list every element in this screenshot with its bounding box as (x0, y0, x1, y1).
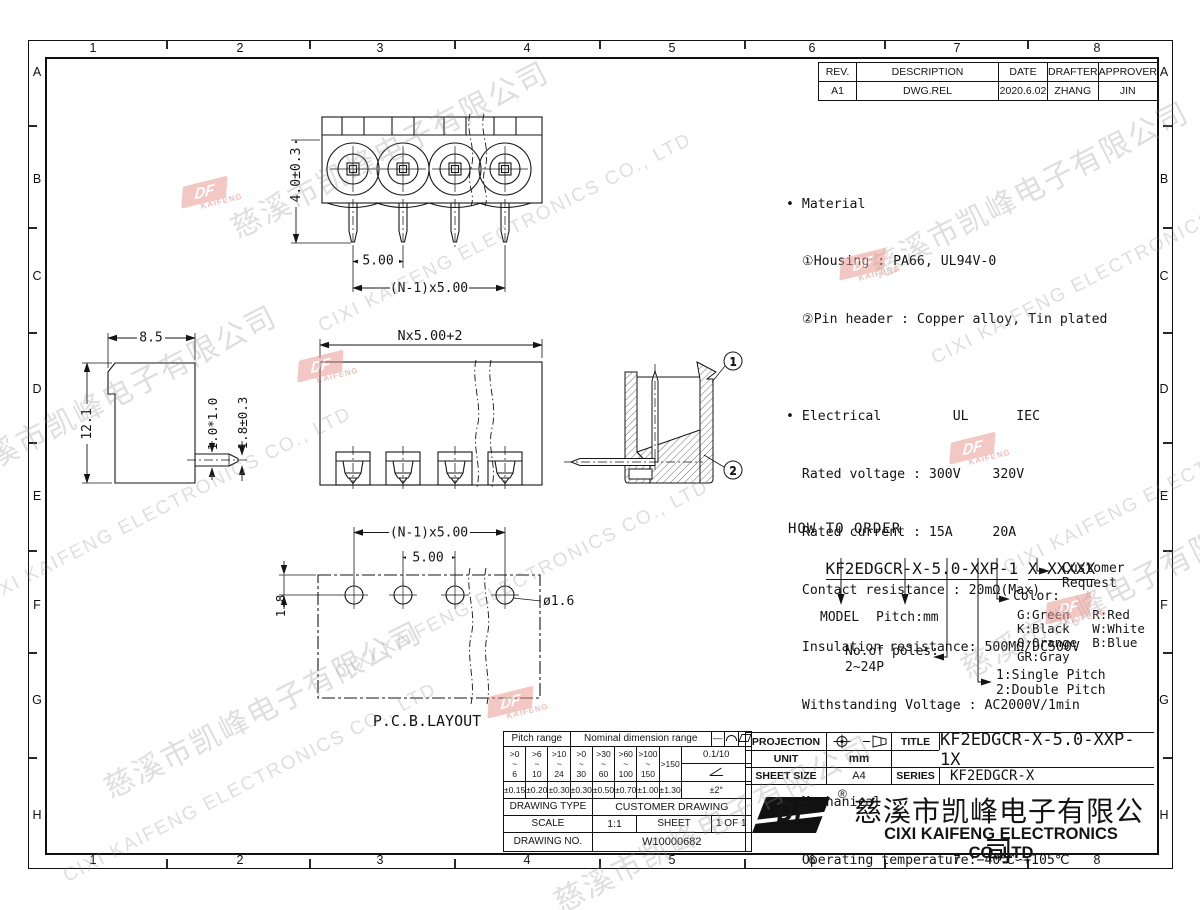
callout-housing: 1 (730, 356, 737, 369)
pcb-dim-total: (N-1)x5.00 (390, 526, 468, 541)
dims-pcb-layout: (N-1)x5.00 5.00 1.8 ø1.6 P.C.B.LAYOUT (273, 526, 574, 731)
dim-height: 12.1 (80, 408, 95, 439)
dims-front-view: Nx5.00+2 (320, 328, 542, 358)
callout-pin: 2 (730, 465, 737, 478)
view-section: 1 2 (564, 352, 742, 483)
pcb-dim-pitch: 5.00 (412, 551, 443, 566)
dim-pitch: 5.00 (362, 254, 393, 269)
pcb-layout-caption: P.C.B.LAYOUT (373, 712, 481, 730)
view-front (320, 360, 542, 491)
dim-pin-height: 4.0±0.3 (289, 148, 304, 203)
pcb-dim-hole: ø1.6 (543, 594, 574, 609)
view-side (108, 363, 247, 483)
drawing-sheet: 1 2 3 4 5 6 7 8 1 2 3 4 5 6 7 8 A B C D … (0, 0, 1200, 910)
dim-pin-square: 1.0*1.0 (205, 398, 220, 451)
dim-pin-offset: 1.8±0.3 (235, 397, 250, 450)
dim-total-pitch: (N-1)x5.00 (390, 281, 468, 296)
pcb-dim-edge: 1.8 (273, 595, 288, 618)
dim-depth: 8.5 (139, 331, 162, 346)
dim-body-length: Nx5.00+2 (397, 328, 462, 344)
technical-drawing-canvas: 4.0±0.3 5.00 (N-1)x5.00 8.5 (0, 0, 1200, 910)
order-tree-arrows (841, 558, 1049, 682)
view-top (322, 114, 542, 249)
view-pcb-layout (318, 568, 540, 704)
